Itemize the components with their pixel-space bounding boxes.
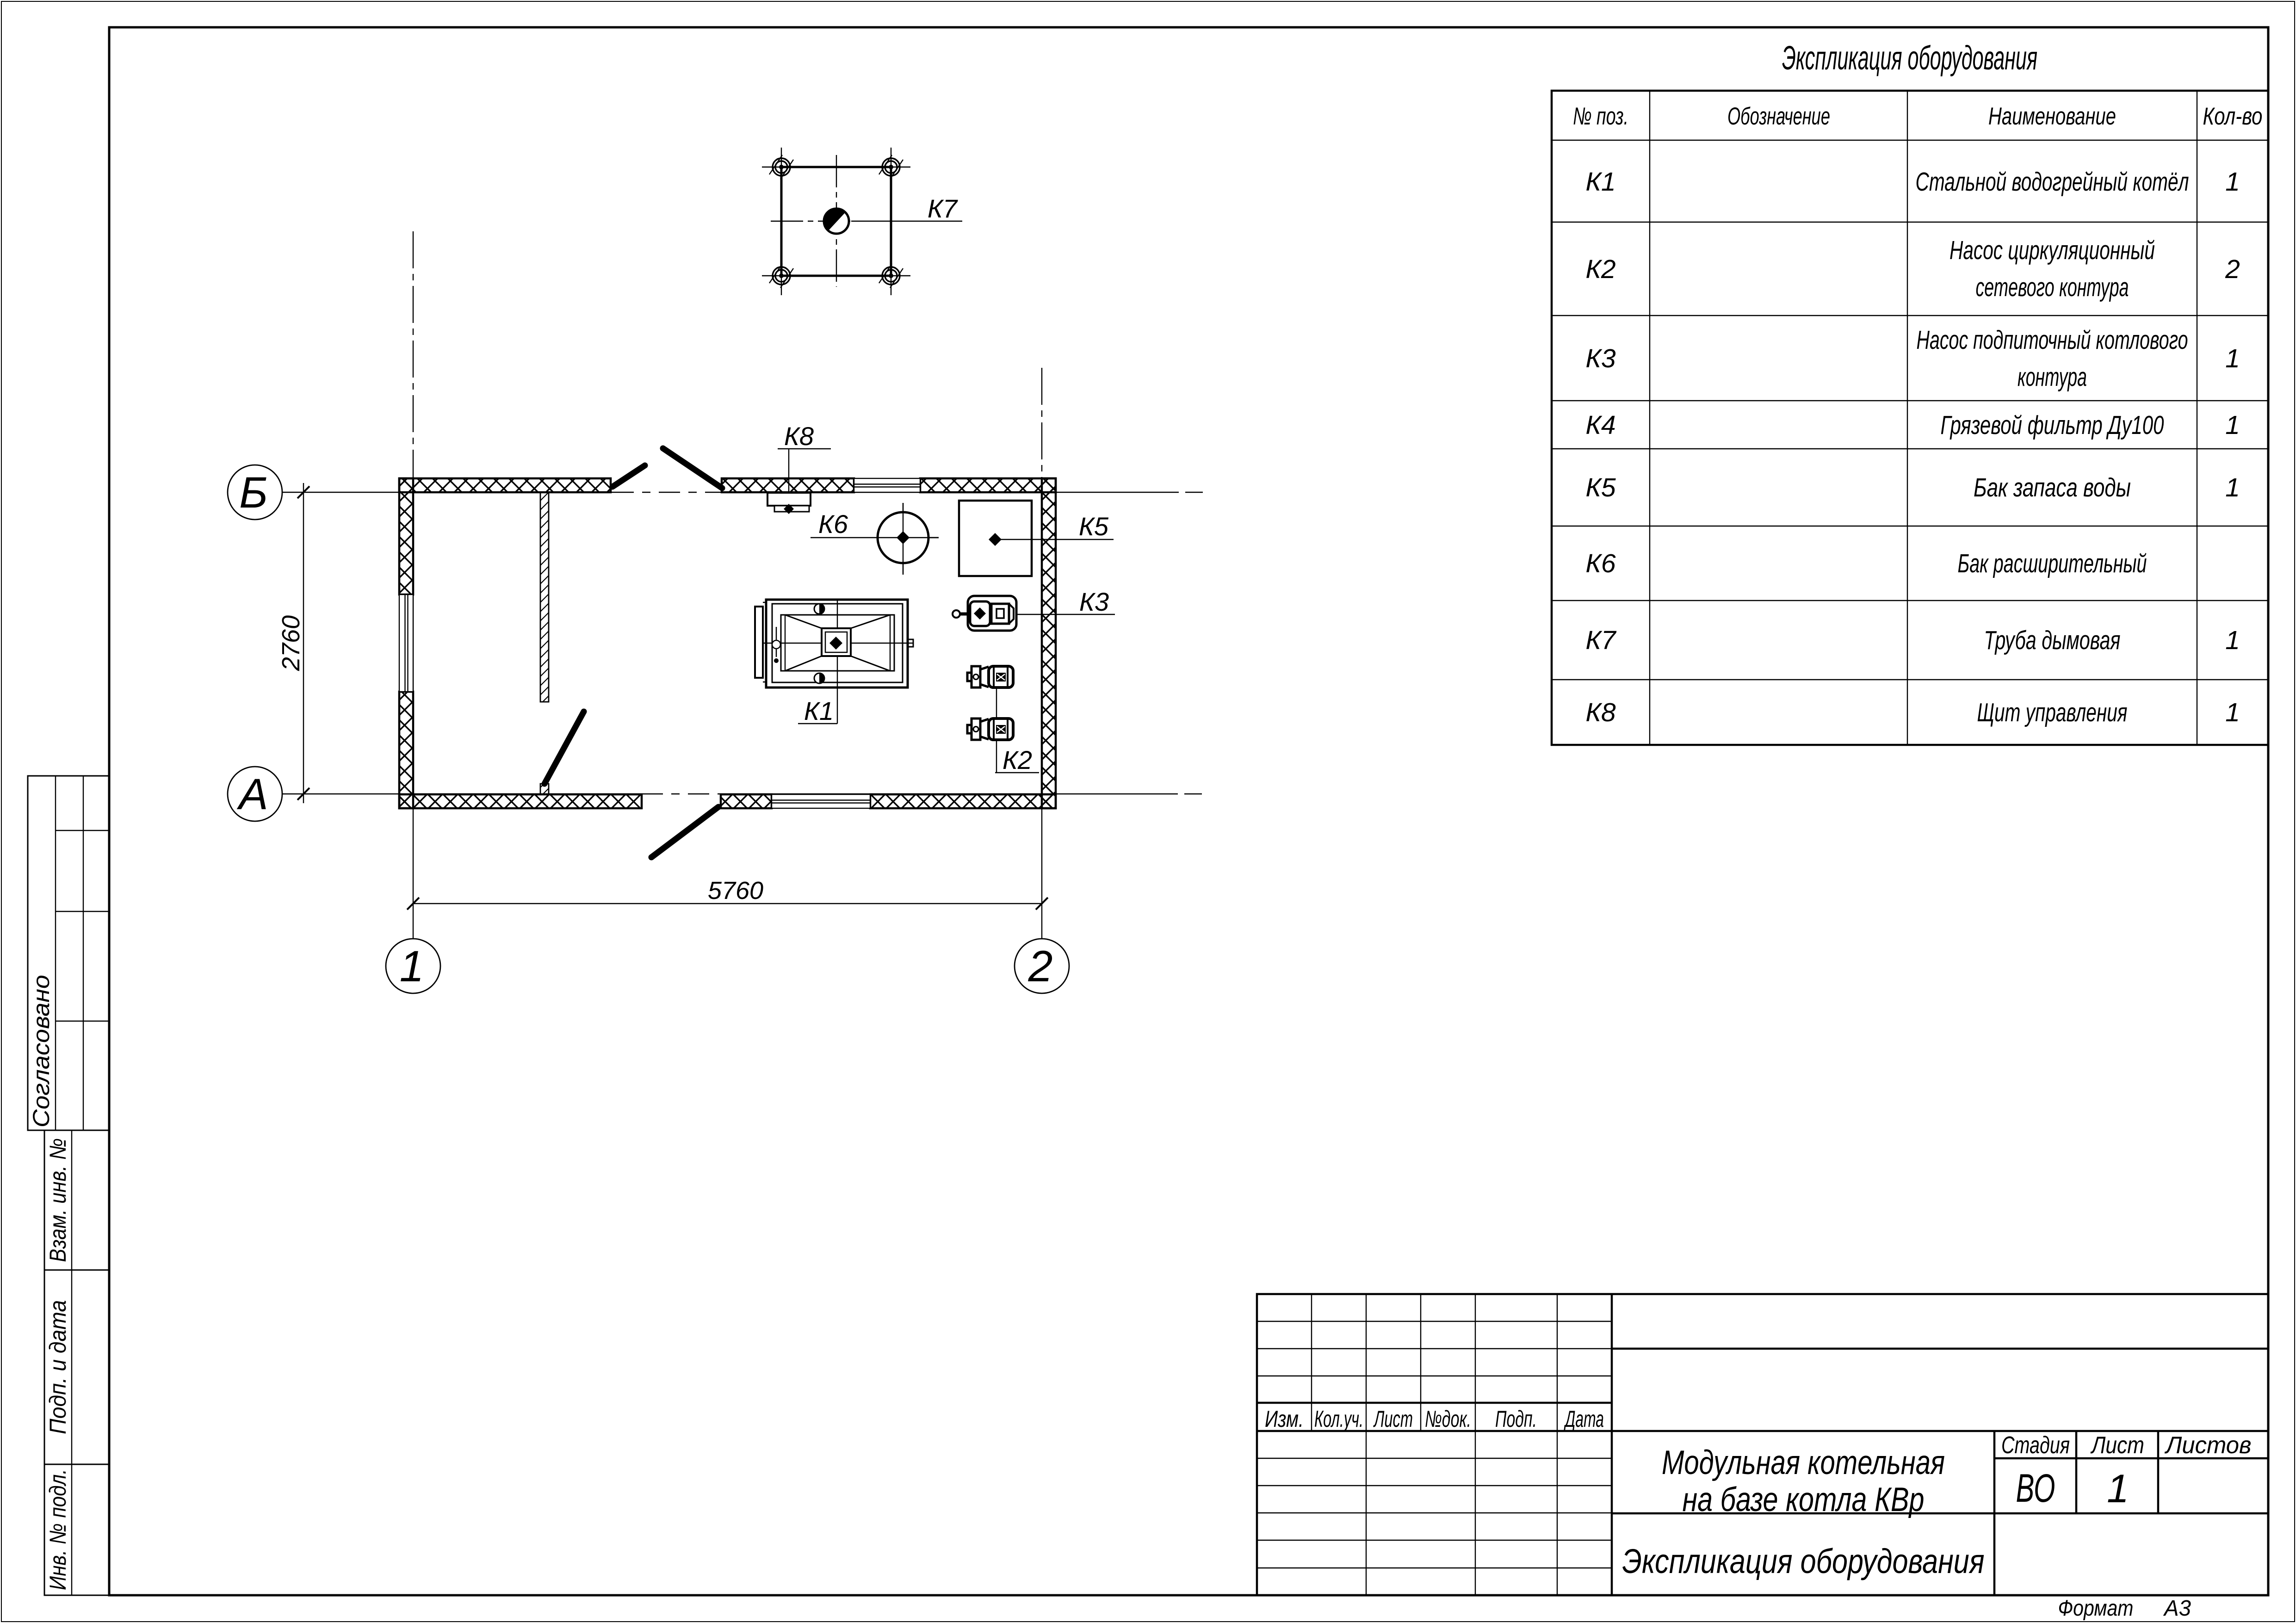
svg-text:Согласовано: Согласовано: [28, 975, 54, 1127]
svg-text:К7: К7: [1585, 626, 1617, 655]
svg-text:К1: К1: [804, 696, 834, 725]
svg-text:К5: К5: [1585, 473, 1616, 502]
svg-text:Бак расширительный: Бак расширительный: [1958, 549, 2147, 578]
svg-text:1: 1: [2225, 344, 2240, 373]
svg-text:Наименование: Наименование: [1988, 103, 2116, 130]
svg-text:Инв. № подл.: Инв. № подл.: [45, 1469, 71, 1590]
svg-text:№док.: №док.: [1425, 1406, 1471, 1432]
svg-text:Кол.уч.: Кол.уч.: [1314, 1406, 1363, 1432]
svg-text:Труба дымовая: Труба дымовая: [1984, 626, 2121, 655]
svg-text:Лист: Лист: [1373, 1406, 1413, 1432]
svg-text:Экспликация оборудования: Экспликация оборудования: [1782, 40, 2037, 77]
svg-text:№ поз.: № поз.: [1573, 103, 1628, 130]
svg-text:контура: контура: [2018, 362, 2087, 392]
svg-text:2: 2: [2225, 254, 2240, 284]
svg-text:Подп. и дата: Подп. и дата: [45, 1300, 71, 1434]
svg-text:1: 1: [400, 942, 424, 991]
svg-text:Листов: Листов: [2165, 1432, 2252, 1459]
svg-text:К8: К8: [1585, 698, 1616, 727]
svg-text:1: 1: [2225, 698, 2240, 727]
svg-text:К6: К6: [1585, 549, 1616, 578]
svg-text:сетевого контура: сетевого контура: [1976, 273, 2129, 302]
svg-text:Обозначение: Обозначение: [1727, 103, 1830, 130]
svg-text:1: 1: [2107, 1467, 2129, 1511]
svg-text:Щит управления: Щит управления: [1977, 698, 2128, 727]
svg-text:К3: К3: [1585, 344, 1616, 373]
svg-text:Взам. инв. №: Взам. инв. №: [45, 1138, 71, 1262]
svg-text:Изм.: Изм.: [1265, 1406, 1304, 1432]
svg-text:К7: К7: [928, 194, 958, 223]
svg-text:5760: 5760: [708, 877, 763, 904]
svg-text:К5: К5: [1079, 512, 1109, 541]
svg-text:Модульная котельная: Модульная котельная: [1662, 1444, 1945, 1481]
svg-text:Стальной водогрейный котёл: Стальной водогрейный котёл: [1916, 167, 2189, 197]
svg-text:А: А: [236, 770, 268, 819]
svg-text:ВО: ВО: [2016, 1466, 2055, 1511]
svg-text:Грязевой фильтр Ду100: Грязевой фильтр Ду100: [1941, 410, 2164, 440]
svg-text:Экспликация оборудования: Экспликация оборудования: [1622, 1542, 1985, 1580]
svg-text:К8: К8: [784, 421, 814, 451]
svg-text:К1: К1: [1585, 167, 1615, 197]
svg-text:Дата: Дата: [1564, 1406, 1604, 1432]
svg-text:1: 1: [2225, 473, 2240, 502]
svg-text:К6: К6: [818, 509, 848, 539]
svg-text:Бак запаса воды: Бак запаса воды: [1974, 473, 2131, 502]
svg-text:Насос подпиточный котлового: Насос подпиточный котлового: [1917, 325, 2188, 355]
svg-text:К2: К2: [1585, 254, 1615, 284]
svg-text:К2: К2: [1003, 745, 1032, 774]
svg-text:Б: Б: [239, 468, 268, 517]
svg-text:Подп.: Подп.: [1495, 1406, 1537, 1432]
svg-text:1: 1: [2225, 410, 2240, 440]
svg-text:К3: К3: [1079, 587, 1109, 616]
svg-text:1: 1: [2225, 167, 2240, 197]
svg-text:на базе котла КВр: на базе котла КВр: [1683, 1481, 1925, 1518]
svg-text:1: 1: [2225, 626, 2240, 655]
svg-text:Насос циркуляционный: Насос циркуляционный: [1949, 235, 2155, 265]
svg-text:Стадия: Стадия: [2001, 1432, 2070, 1459]
svg-text:А3: А3: [2163, 1596, 2191, 1621]
svg-text:Формат: Формат: [2058, 1596, 2134, 1621]
svg-text:2: 2: [1028, 942, 1053, 991]
svg-text:Лист: Лист: [2090, 1432, 2144, 1459]
svg-text:К4: К4: [1585, 410, 1615, 440]
svg-text:Кол-во: Кол-во: [2203, 103, 2263, 130]
svg-text:2760: 2760: [277, 615, 305, 671]
